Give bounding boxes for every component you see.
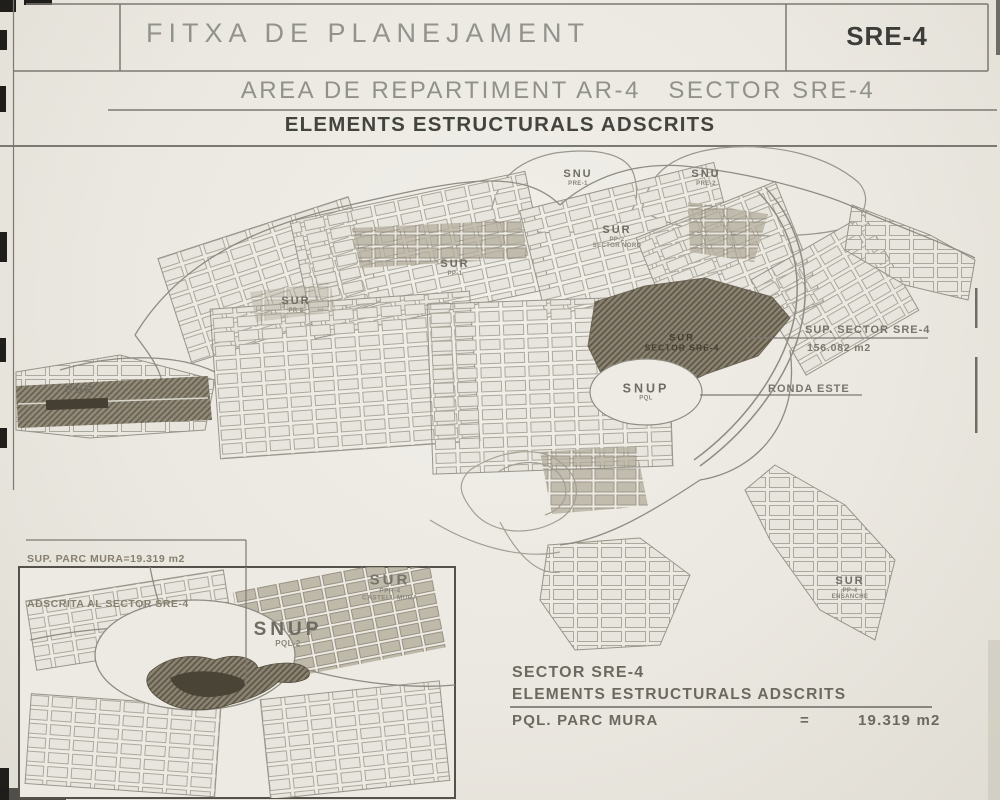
sector-area-annotation-title: SUP. SECTOR SRE-4 (805, 324, 930, 336)
map-label-snu-east: SNU PRE-2 (691, 169, 720, 187)
inset-label-sur: SUR PPR-4 CASTELL MURA (362, 572, 418, 601)
road-annotation: RONDA ESTE (768, 383, 850, 395)
map-label-sur-north: SUR PP-2 SECTOR NORD (593, 225, 642, 249)
map-label-sur-center: SUR PP-1 (440, 259, 469, 277)
section-title: ELEMENTS ESTRUCTURALS ADSCRITS (40, 113, 960, 137)
map-label-sur-southeast: SUR PP-4 ENSANCHE (832, 576, 869, 600)
map-label-snup: SNUP PQL (623, 382, 670, 401)
inset-callout: SUP. PARC MURA=19.319 m2 ADSCRITA AL SEC… (27, 522, 189, 642)
map-label-sur-strip: SUR (65, 385, 94, 397)
sector-area-annotation-value: 156.082 m2 (807, 342, 871, 354)
sheet-subtitle: AREA DE REPARTIMENT AR-4 SECTOR SRE-4 (118, 77, 998, 105)
inset-label-snup: SNUP PQL-2 (254, 620, 323, 648)
summary-equals-sign: = (800, 712, 810, 729)
inset-callout-line2: ADSCRITA AL SECTOR SRE-4 (27, 597, 189, 612)
summary-sector: SECTOR SRE-4 (512, 664, 644, 682)
summary-item-label: PQL. PARC MURA (512, 712, 659, 729)
scanned-planning-sheet: FITXA DE PLANEJAMENT SRE-4 AREA DE REPAR… (0, 0, 1000, 800)
sheet-title: FITXA DE PLANEJAMENT (128, 18, 608, 49)
summary-item-value: 19.319 m2 (858, 712, 941, 729)
summary-subtitle: ELEMENTS ESTRUCTURALS ADSCRITS (512, 686, 846, 704)
map-label-sector-sre4: SUR SECTOR SRE-4 (645, 334, 720, 353)
map-label-snu-west: SNU PRE-1 (563, 169, 592, 187)
inset-callout-line1: SUP. PARC MURA=19.319 m2 (27, 552, 189, 567)
map-label-sur-west: SUR PP-3 (281, 296, 310, 314)
sheet-code: SRE-4 (788, 21, 986, 52)
